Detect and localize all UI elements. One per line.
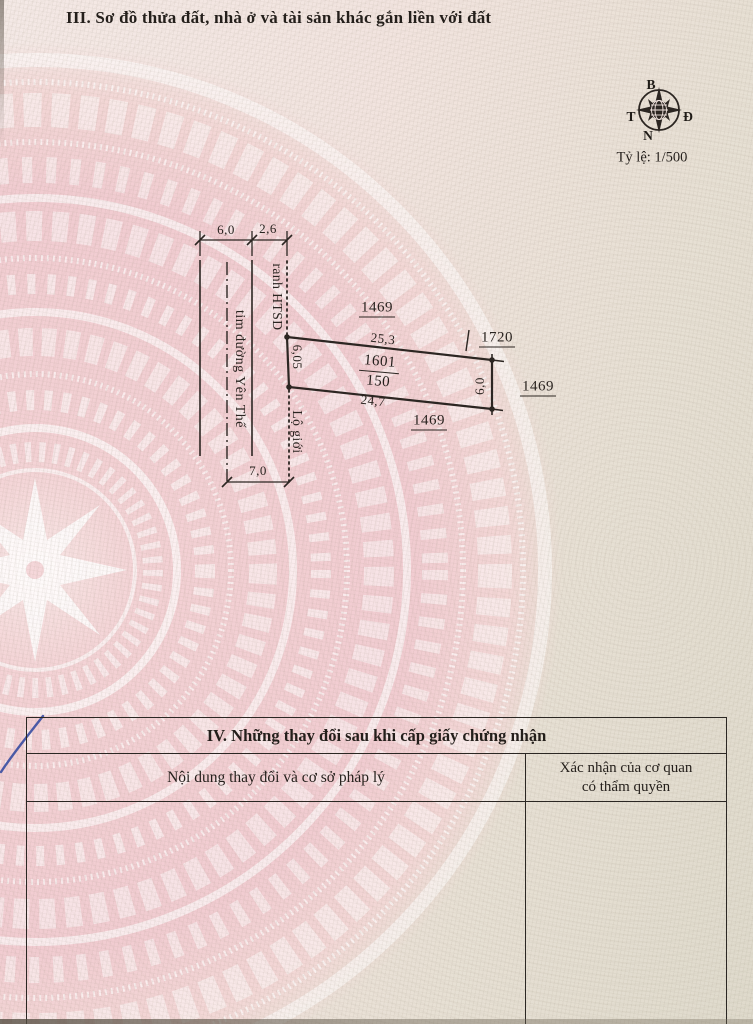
neighbor-parcel-bottom: 1469 bbox=[411, 413, 447, 430]
section4-table: IV. Những thay đổi sau khi cấp giấy chứn… bbox=[26, 717, 727, 1024]
dim-bottom: 7,0 bbox=[249, 463, 267, 479]
section4-body-row bbox=[27, 802, 726, 1024]
section4-title: IV. Những thay đổi sau khi cấp giấy chứn… bbox=[207, 726, 547, 746]
column-header-content: Nội dung thay đổi và cơ sở pháp lý bbox=[27, 754, 526, 801]
compass-west-label: T bbox=[626, 109, 635, 125]
photo-edge-bottom bbox=[0, 1019, 753, 1024]
body-cell-content bbox=[27, 802, 526, 1024]
compass-south-label: N bbox=[643, 128, 653, 144]
dim-top-edge: 25,3 bbox=[370, 330, 396, 349]
section4-header-row: Nội dung thay đổi và cơ sở pháp lý Xác n… bbox=[27, 754, 726, 802]
parcel-area: 150 bbox=[357, 371, 398, 392]
certificate-page: III. Sơ đồ thửa đất, nhà ở và tài sản kh… bbox=[0, 0, 753, 1024]
confirmation-line1: Xác nhận của cơ quan bbox=[560, 759, 693, 778]
compass-east-label: Đ bbox=[683, 109, 693, 125]
dim-bottom-edge: 24,7 bbox=[360, 392, 386, 411]
ranh-htsd-label: ranh HTSD bbox=[269, 263, 285, 330]
lo-gioi-label: Lộ giới bbox=[289, 410, 305, 453]
dim-road-width: 6,0 bbox=[217, 222, 235, 238]
photo-edge-left bbox=[0, 0, 4, 150]
section4-title-row: IV. Những thay đổi sau khi cấp giấy chứn… bbox=[27, 718, 726, 754]
neighbor-parcel-top: 1469 bbox=[359, 300, 395, 317]
section3-title: III. Sơ đồ thửa đất, nhà ở và tài sản kh… bbox=[66, 8, 586, 28]
confirmation-line2: có thẩm quyền bbox=[582, 778, 670, 797]
dim-right-edge: 6,0 bbox=[472, 377, 488, 395]
road-centerline-label: tim đường Yên Thế bbox=[231, 310, 247, 428]
column-header-confirmation: Xác nhận của cơ quan có thẩm quyền bbox=[526, 754, 726, 801]
compass-rose-icon bbox=[636, 87, 682, 133]
body-cell-confirmation bbox=[526, 802, 726, 1024]
compass-north-label: B bbox=[646, 77, 655, 93]
parcel-number-area: 1601 150 bbox=[357, 352, 400, 392]
neighbor-parcel-right: 1469 bbox=[520, 379, 556, 396]
dim-left-edge: 6,05 bbox=[289, 345, 305, 370]
top-dimension-line bbox=[195, 231, 292, 256]
neighbor-parcel-top-right: 1720 bbox=[479, 330, 515, 347]
dim-setback: 2,6 bbox=[259, 221, 277, 237]
scale-label: Tỷ lệ: 1/500 bbox=[617, 150, 688, 167]
